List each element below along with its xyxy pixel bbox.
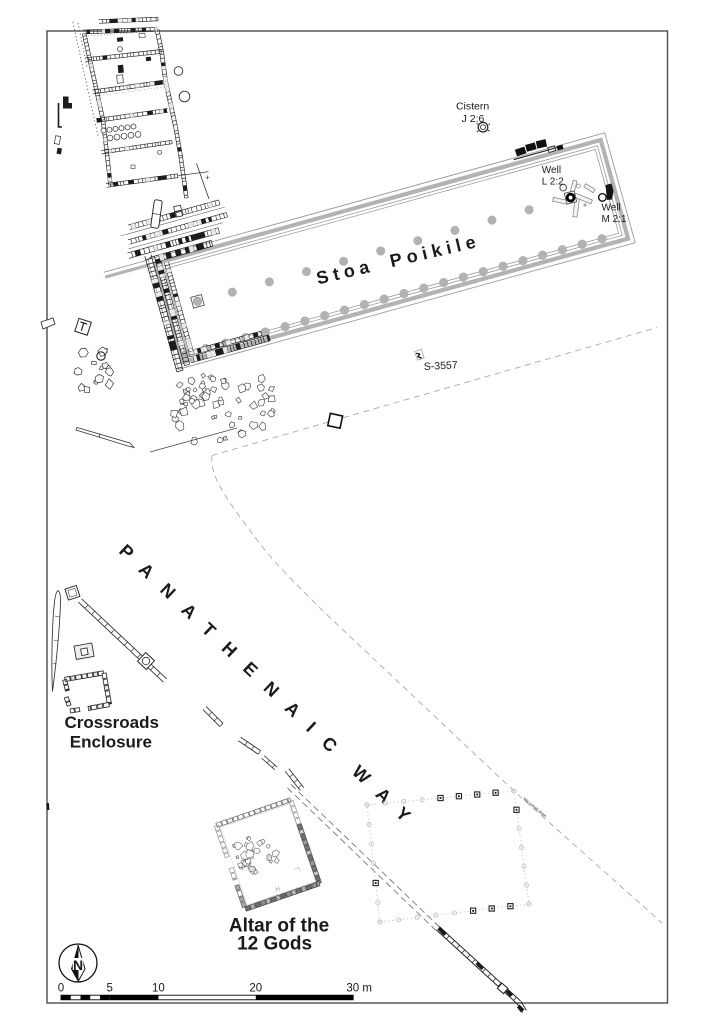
svg-text:12 Gods: 12 Gods xyxy=(237,934,312,955)
svg-text:N: N xyxy=(73,957,83,973)
svg-text:M 2:1: M 2:1 xyxy=(602,214,627,225)
svg-text:Crossroads: Crossroads xyxy=(64,713,158,732)
svg-text:Enclosure: Enclosure xyxy=(70,732,152,751)
svg-text:5: 5 xyxy=(106,983,112,995)
svg-text:10: 10 xyxy=(152,983,165,995)
svg-text:Cistern: Cistern xyxy=(456,101,489,113)
svg-text:L 2:2: L 2:2 xyxy=(542,177,564,188)
svg-text:J 2:6: J 2:6 xyxy=(462,113,485,125)
svg-text:Well: Well xyxy=(602,203,621,214)
svg-text:S-3557: S-3557 xyxy=(424,359,459,373)
svg-text:Well: Well xyxy=(542,165,561,176)
svg-text:0: 0 xyxy=(58,983,64,995)
svg-text:30 m: 30 m xyxy=(346,983,372,995)
svg-text:20: 20 xyxy=(249,983,262,995)
